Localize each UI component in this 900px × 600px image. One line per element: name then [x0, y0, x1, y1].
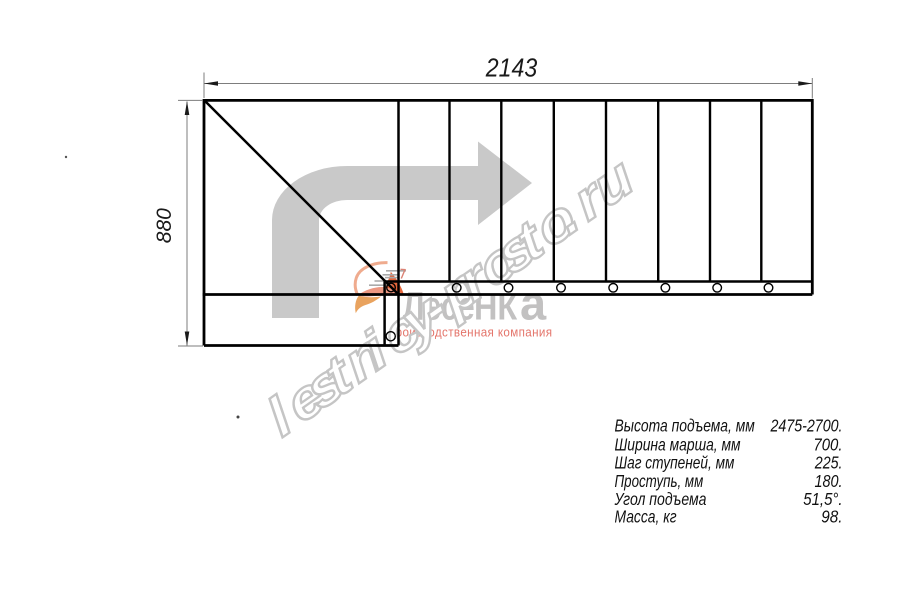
svg-text:2143: 2143: [485, 54, 538, 83]
svg-text:180.: 180.: [814, 471, 842, 491]
svg-text:Угол подъема: Угол подъема: [614, 489, 707, 509]
svg-text:880: 880: [153, 208, 176, 243]
svg-text:Масса, кг: Масса, кг: [615, 508, 677, 527]
svg-text:Высота подъема, мм: Высота подъема, мм: [615, 417, 755, 436]
svg-text:Проступь, мм: Проступь, мм: [615, 472, 704, 491]
svg-text:2475-2700.: 2475-2700.: [770, 416, 843, 436]
svg-text:225.: 225.: [814, 453, 843, 473]
svg-text:Ширина марша, мм: Ширина марша, мм: [615, 436, 741, 455]
svg-text:700.: 700.: [813, 435, 842, 454]
svg-text:а: а: [520, 277, 547, 330]
svg-text:98.: 98.: [821, 507, 842, 527]
svg-text:Шаг ступеней, мм: Шаг ступеней, мм: [615, 454, 735, 473]
